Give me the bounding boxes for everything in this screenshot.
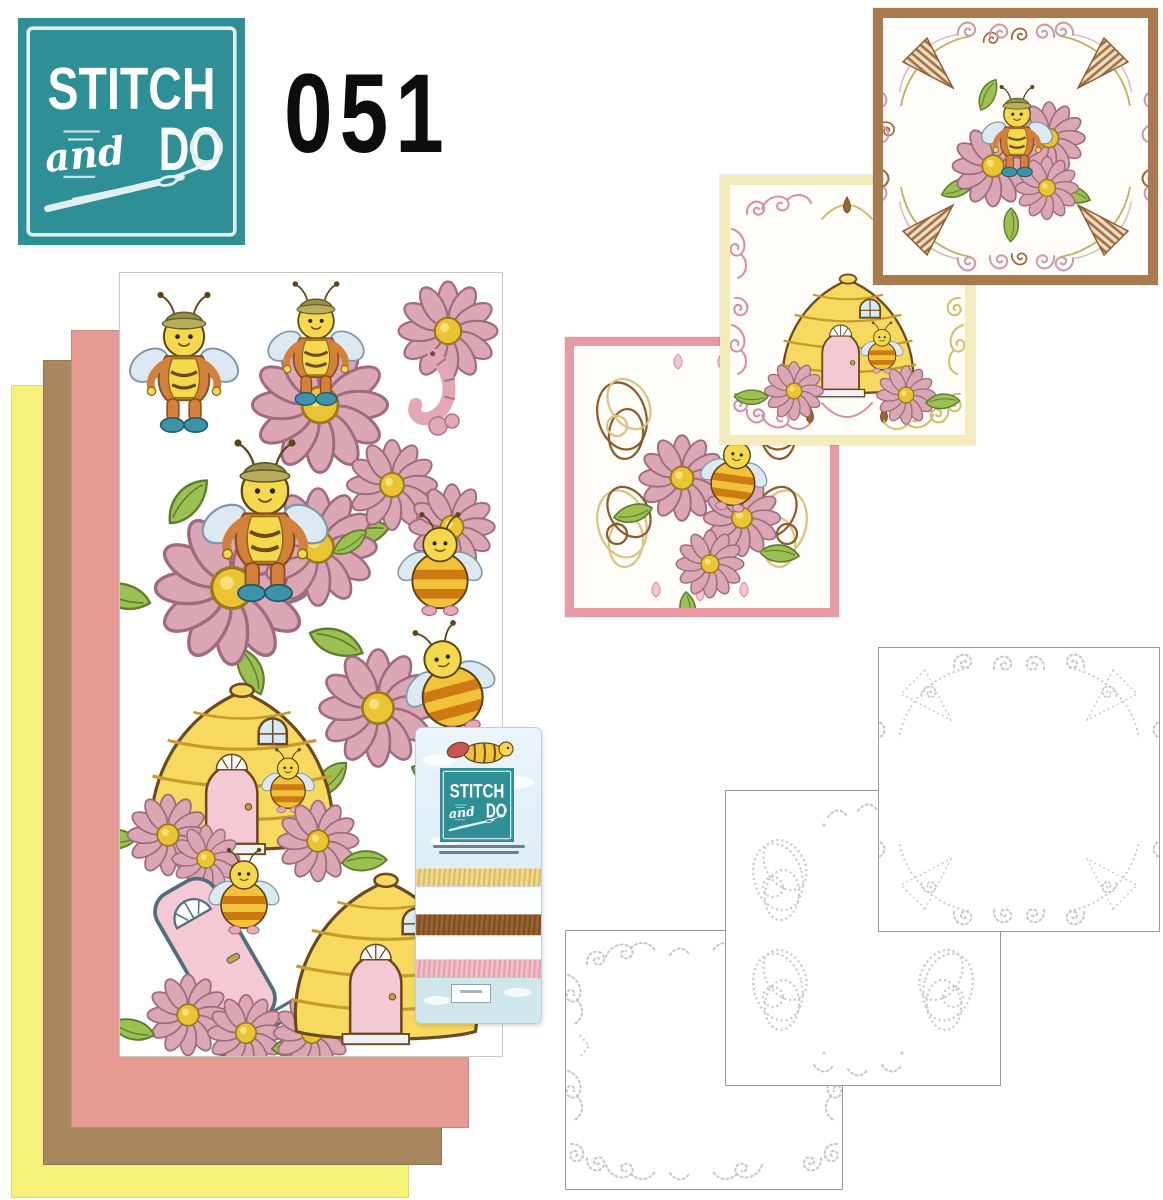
edition-number: 051 [284,58,451,170]
pack-barcode-label [451,984,491,1003]
thread-band-gold [416,868,541,886]
template-fans-art [879,648,1159,931]
worm-piece-icon [429,417,447,435]
sitting-bee-icon [124,292,245,432]
thread-band-brown [416,914,541,935]
embroidery-thread-pack [415,727,542,1024]
card-yellow-motif [734,274,960,424]
pack-bottom-strip [416,978,541,1023]
pack-card-gap [416,886,541,914]
card-pink-motif [612,425,800,608]
finished-card-brown [873,8,1158,285]
stitch-and-do-logo [18,18,245,245]
pack-caption-line [439,851,519,854]
pack-caption-line [433,845,525,848]
dotted-fan-pattern [879,655,1159,925]
card-brown-art [883,18,1148,275]
worm-piece-icon [445,414,459,428]
pack-bee-illustration [434,736,524,766]
thread-band-pink [416,959,541,978]
product-image: STITCH and DO 051 [0,0,1163,1200]
pack-card-gap [416,935,541,959]
template-fan-corners [878,647,1160,932]
leaf-icon [120,575,153,617]
card-brown-motif [939,76,1093,242]
pack-logo [440,768,514,842]
